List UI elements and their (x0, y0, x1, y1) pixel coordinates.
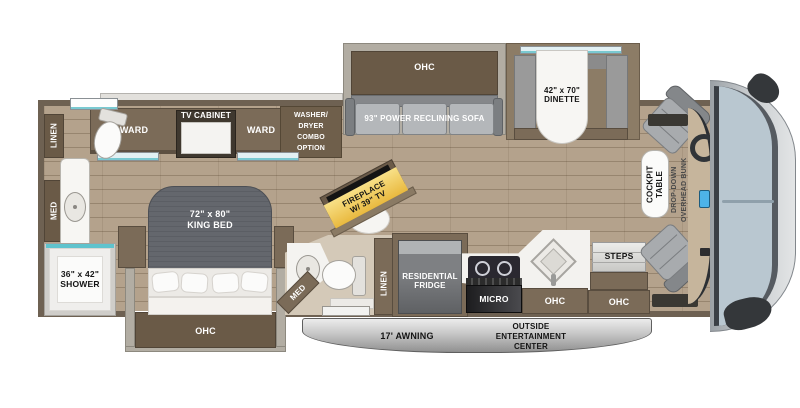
bed-pillow (151, 271, 180, 294)
kitchen-faucet (551, 274, 556, 286)
king-bed-label: 72" x 80" KING BED (160, 206, 260, 234)
outside-entertainment-label: OUTSIDE ENTERTAINMENT CENTER (468, 320, 594, 353)
rear-bath-sink-drain (73, 205, 77, 209)
floorplan-canvas: 17' AWNING OUTSIDE ENTERTAINMENT CENTER … (0, 0, 800, 408)
shower-glass-door (46, 244, 114, 248)
dash-panel (700, 248, 710, 256)
sofa-ohc-label: OHC (351, 60, 498, 74)
awning-label: 17' AWNING (352, 328, 462, 344)
windshield-divider (722, 200, 774, 203)
bed-pillow (211, 272, 239, 294)
tv-screen (181, 122, 231, 154)
bedroom-window-right (237, 152, 299, 161)
dinette-label: 42" x 70" DINETTE (534, 80, 590, 110)
cooktop-burner (475, 261, 490, 276)
dash-top-controls (648, 114, 688, 126)
rear-linen-label: LINEN (44, 114, 64, 158)
tv-cabinet-label: TV CABINET (166, 110, 246, 121)
bed-pillow (180, 272, 208, 294)
bed-ohc-label: OHC (135, 324, 276, 338)
bed-blanket-fold (149, 296, 271, 314)
kitchen-ohc-label: OHC (522, 294, 588, 308)
dinette-bench-right (606, 55, 628, 133)
mid-linen-label: LINEN (374, 258, 394, 310)
dash-screen (699, 190, 710, 208)
bed-slide-wall-left (125, 268, 135, 352)
cockpit-table-label: COCKPIT TABLE (641, 150, 669, 218)
entry-ohc-label: OHC (588, 295, 650, 309)
nightstand-left (118, 226, 146, 268)
shower-label: 36" x 42" SHOWER (46, 266, 114, 292)
cooktop-burner (497, 261, 512, 276)
bed-pillow (240, 271, 269, 294)
fridge-label: RESIDENTIAL FRIDGE (398, 268, 462, 294)
entry-cabinet (590, 272, 648, 290)
mid-toilet-bowl (322, 260, 356, 290)
micro-label: MICRO (466, 292, 522, 306)
windshield (714, 86, 778, 326)
dinette-bench-left (514, 55, 536, 133)
mid-bath-window (322, 306, 370, 316)
sofa-label: 93" POWER RECLINING SOFA (351, 108, 498, 130)
washer-dryer-label: WASHER/ DRYER COMBO OPTION (280, 108, 342, 156)
